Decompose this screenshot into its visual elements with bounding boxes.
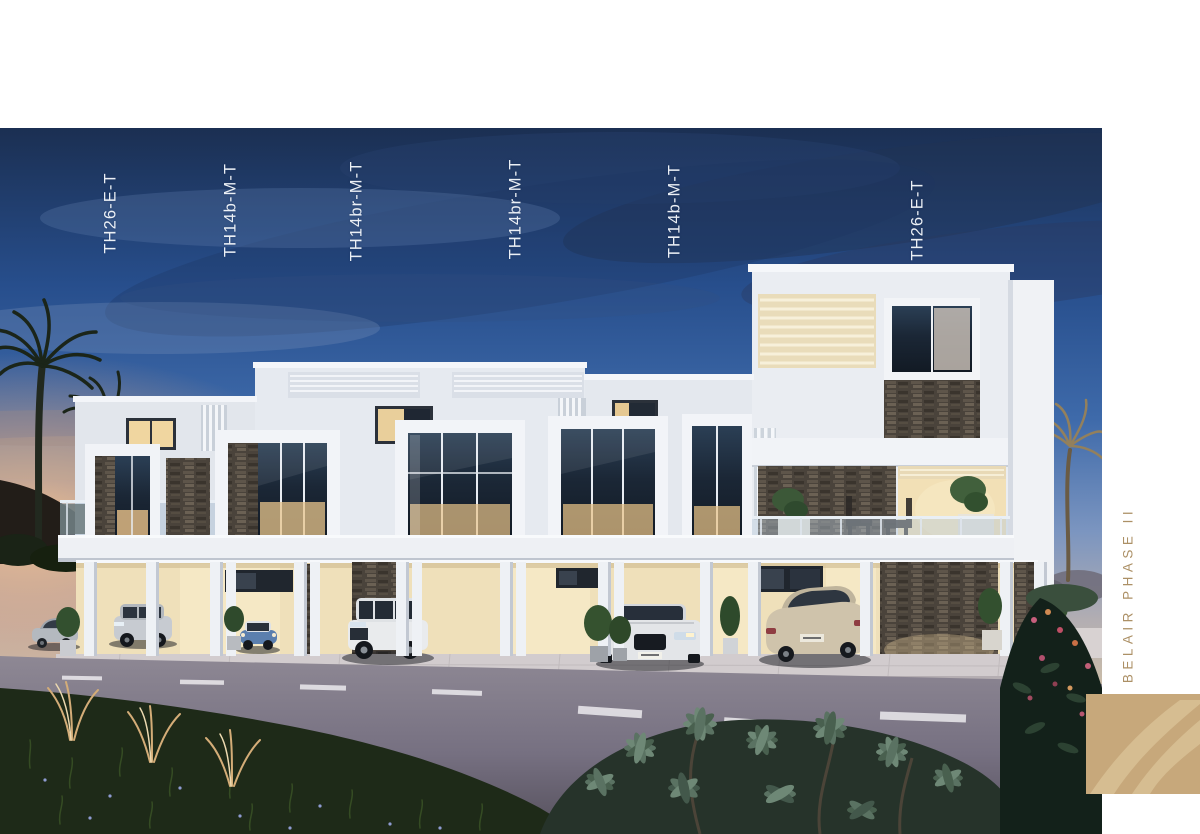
rendering-canvas	[0, 128, 1102, 834]
brand-vertical-text: BELAIR PHASE II	[1121, 507, 1136, 683]
townhouse-rendering	[0, 128, 1102, 834]
unit-label-th26-e-t-right: TH26-E-T	[909, 179, 928, 260]
floor-slab	[58, 535, 1014, 561]
unit-label-th14br-m-t-left: TH14br-M-T	[348, 161, 367, 262]
unit-label-th14br-m-t-right: TH14br-M-T	[507, 159, 526, 260]
brand-logo-swoosh	[1086, 694, 1200, 794]
unit-label-th26-e-t-left: TH26-E-T	[102, 172, 121, 253]
brand-logo	[1086, 694, 1200, 794]
brochure-page: TH26-E-T TH14b-M-T TH14br-M-T TH14br-M-T…	[0, 0, 1200, 834]
unit-label-th14b-m-t-left: TH14b-M-T	[222, 163, 241, 257]
unit-label-th14b-m-t-right: TH14b-M-T	[666, 164, 685, 258]
